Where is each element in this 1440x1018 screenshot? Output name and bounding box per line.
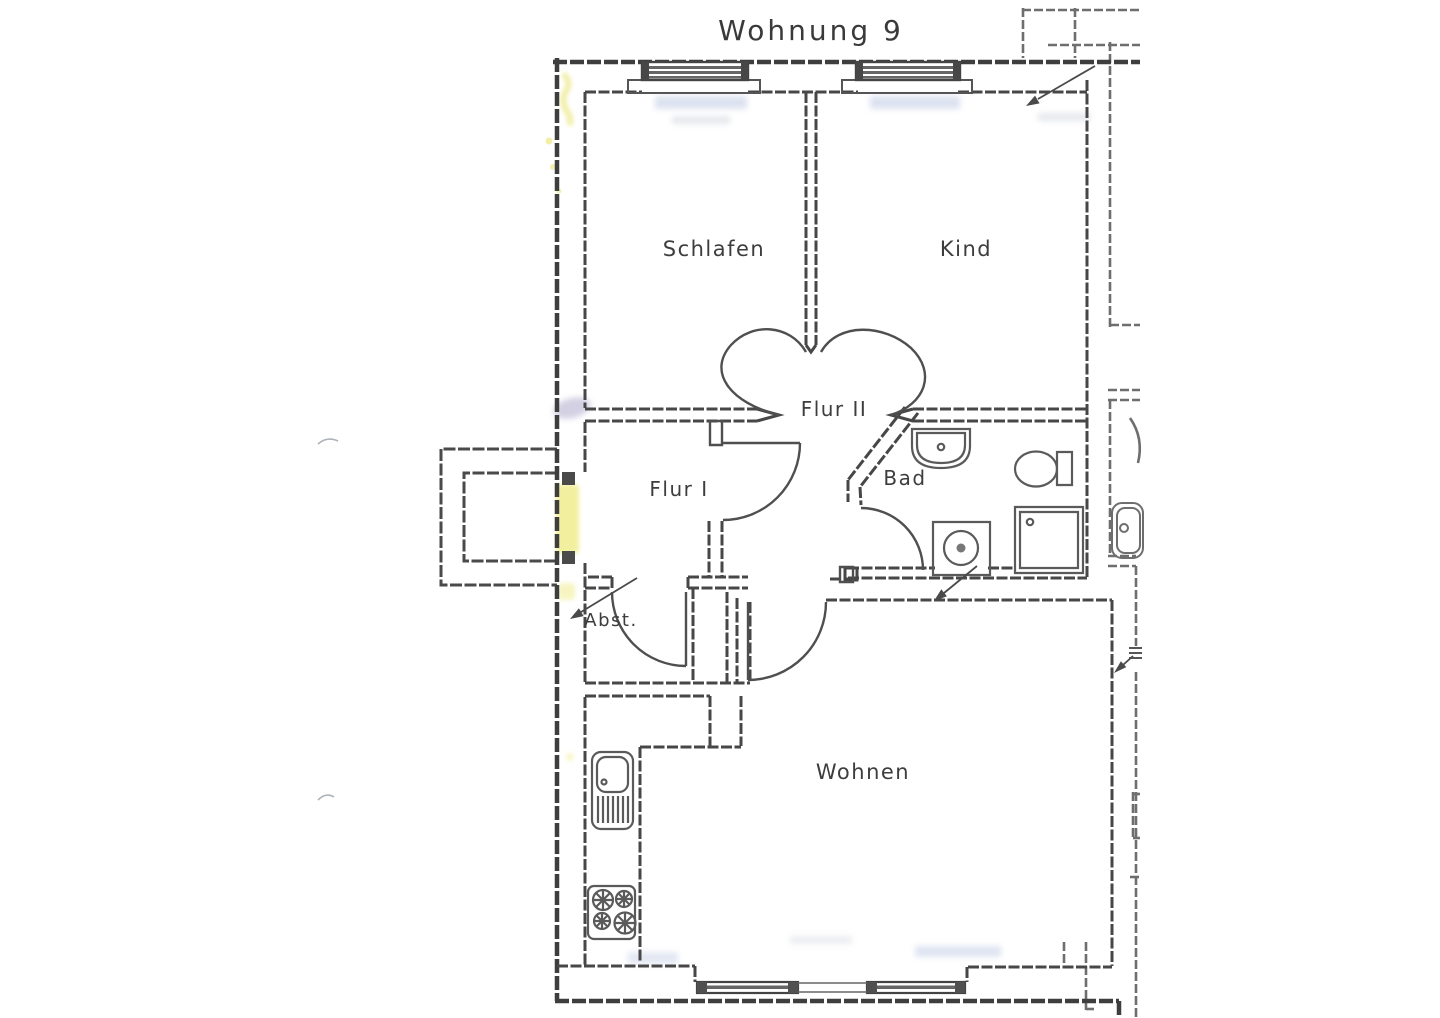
washing-machine-icon: [933, 522, 990, 575]
entrance-door-post: [562, 472, 575, 485]
shower-icon: [1015, 507, 1083, 573]
window-icon: [697, 982, 798, 993]
windows: [628, 62, 972, 993]
kitchen-sink-icon: [592, 752, 633, 829]
room-label-bad: Bad: [883, 466, 926, 490]
window-icon: [628, 62, 760, 93]
room-label-kind: Kind: [940, 237, 992, 261]
stove-icon: [588, 886, 636, 939]
scan-smudges: [551, 96, 1090, 964]
room-label-abst: Abst.: [584, 610, 637, 631]
flur-door-arc: [723, 443, 800, 520]
room-label-wohnen: Wohnen: [816, 760, 910, 784]
neighbor-window-hatch: [1129, 648, 1142, 658]
entrance-door-post: [562, 551, 575, 564]
room-label-flur2: Flur II: [801, 397, 868, 421]
door-swings: [612, 329, 925, 680]
window-icon: [867, 982, 965, 993]
stair-landing-walls: [441, 449, 557, 585]
side-door-arrow-icon: [1114, 656, 1133, 673]
bad-door-arc: [861, 508, 923, 570]
floor-plan-drawing: Wohnung 9 Schlafen Kind Flur II Flur I B…: [0, 0, 1440, 1018]
neighbor-sink-icon: [1112, 503, 1143, 558]
page-title: Wohnung 9: [718, 14, 904, 47]
floor-plan-page: Wohnung 9 Schlafen Kind Flur II Flur I B…: [0, 0, 1440, 1018]
window-icon: [842, 62, 972, 93]
pencil-marks: [318, 439, 338, 800]
room-label-flur1: Flur I: [649, 477, 708, 501]
inner-walls: [557, 80, 1112, 982]
bathroom-sink-icon: [912, 429, 970, 468]
schlafen-door-arc: [721, 329, 806, 415]
room-label-schlafen: Schlafen: [663, 237, 766, 261]
entrance-door-highlight: [556, 484, 579, 554]
door-jamb-stub: [710, 421, 722, 445]
toilet-icon: [1015, 452, 1072, 487]
kind-door-arrow-icon: [1026, 66, 1095, 106]
wohnen-door-arc: [748, 602, 826, 680]
entrance-arrow-icon: [934, 566, 977, 601]
